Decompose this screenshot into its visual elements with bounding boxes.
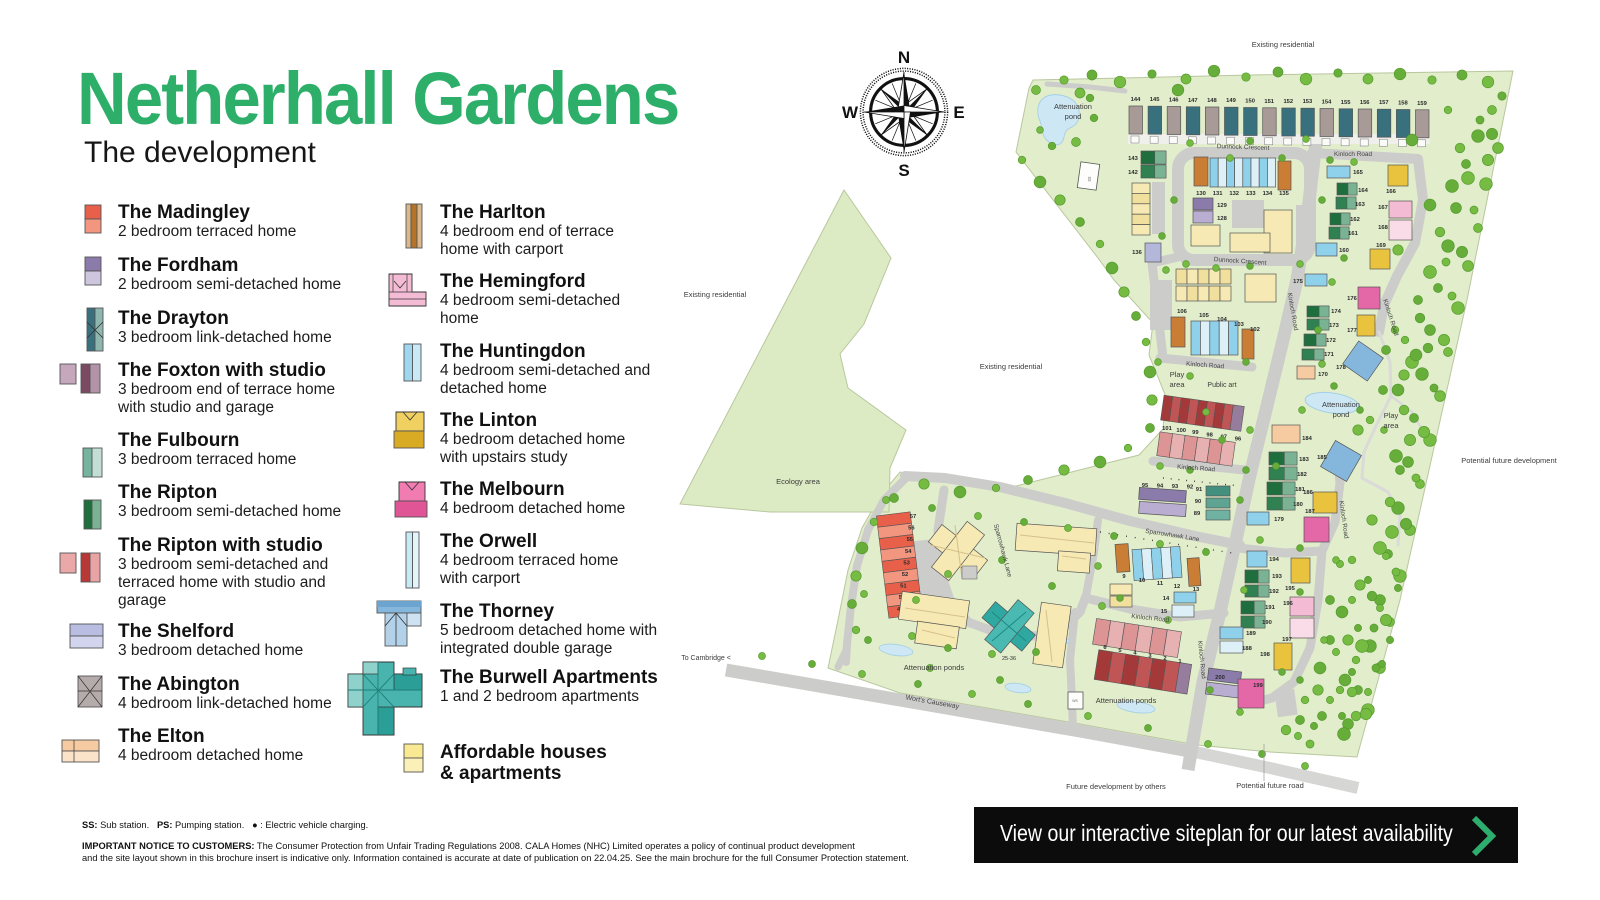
- svg-text:The Melbourn: The Melbourn: [440, 479, 565, 500]
- svg-text:132: 132: [1229, 191, 1239, 197]
- svg-text:4 bedroom terraced home: 4 bedroom terraced home: [440, 552, 618, 569]
- svg-text:147: 147: [1188, 98, 1198, 104]
- svg-text:pond: pond: [1065, 112, 1082, 121]
- svg-text:ws: ws: [1072, 698, 1078, 703]
- svg-text:165: 165: [1353, 170, 1363, 176]
- svg-text:E: E: [953, 103, 964, 122]
- svg-text:The Thorney: The Thorney: [440, 601, 554, 622]
- svg-text:157: 157: [1379, 100, 1389, 106]
- svg-text:133: 133: [1246, 191, 1256, 197]
- svg-text:The Abington: The Abington: [118, 674, 240, 695]
- svg-text:92: 92: [1187, 485, 1193, 491]
- svg-text:168: 168: [1378, 225, 1388, 231]
- svg-text:93: 93: [1172, 484, 1179, 490]
- svg-text:15: 15: [1161, 609, 1168, 615]
- svg-text:179: 179: [1274, 517, 1284, 523]
- svg-text:3 bedroom end of terrace home: 3 bedroom end of terrace home: [118, 381, 335, 398]
- svg-text:3 bedroom link-detached home: 3 bedroom link-detached home: [118, 329, 332, 346]
- svg-text:Kinloch Road: Kinloch Road: [1334, 151, 1372, 158]
- svg-text:The Madingley: The Madingley: [118, 202, 250, 223]
- svg-text:Potential future development: Potential future development: [1461, 456, 1557, 465]
- svg-text:The Fordham: The Fordham: [118, 255, 238, 276]
- svg-text:155: 155: [1341, 100, 1351, 106]
- svg-text:196: 196: [1283, 601, 1293, 607]
- svg-text:Public art: Public art: [1207, 382, 1236, 389]
- svg-text:128: 128: [1217, 216, 1227, 222]
- svg-text:152: 152: [1283, 99, 1293, 105]
- svg-text:51: 51: [900, 584, 907, 590]
- svg-text:2: 2: [1163, 656, 1166, 662]
- svg-text:Attenuation ponds: Attenuation ponds: [1096, 696, 1157, 705]
- svg-text:91: 91: [1196, 487, 1203, 493]
- svg-text:11: 11: [1157, 581, 1164, 587]
- svg-text:146: 146: [1169, 98, 1179, 104]
- svg-text:The Orwell: The Orwell: [440, 531, 537, 552]
- svg-text:Ecology area: Ecology area: [776, 477, 821, 486]
- svg-text:with studio and garage: with studio and garage: [117, 399, 274, 416]
- svg-text:The Elton: The Elton: [118, 726, 205, 747]
- svg-text:175: 175: [1293, 279, 1303, 285]
- svg-text:home with carport: home with carport: [440, 241, 564, 258]
- svg-text:156: 156: [1360, 100, 1370, 106]
- svg-text:57: 57: [910, 514, 916, 520]
- svg-text:103: 103: [1234, 322, 1244, 328]
- svg-text:25-36: 25-36: [1002, 656, 1016, 662]
- svg-text:Existing residential: Existing residential: [1252, 40, 1315, 49]
- svg-text:2 bedroom terraced home: 2 bedroom terraced home: [118, 223, 296, 240]
- svg-text:Future development by others: Future development by others: [1066, 782, 1166, 791]
- svg-text:106: 106: [1177, 309, 1187, 315]
- svg-text:183: 183: [1299, 457, 1309, 463]
- svg-text:with carport: with carport: [439, 570, 521, 587]
- svg-text:The Ripton with studio: The Ripton with studio: [118, 535, 323, 556]
- svg-text:198: 198: [1260, 652, 1270, 658]
- svg-text:99: 99: [1192, 430, 1199, 436]
- svg-text:3 bedroom terraced home: 3 bedroom terraced home: [118, 451, 296, 468]
- svg-text:105: 105: [1199, 313, 1209, 319]
- svg-text:98: 98: [1206, 432, 1213, 438]
- svg-text:171: 171: [1324, 352, 1334, 358]
- svg-text:143: 143: [1128, 156, 1138, 162]
- svg-text:177: 177: [1347, 328, 1357, 334]
- svg-text:197: 197: [1282, 637, 1292, 643]
- svg-text:169: 169: [1376, 243, 1386, 249]
- svg-text:home: home: [440, 310, 479, 327]
- svg-text:N: N: [898, 48, 910, 67]
- svg-text:10: 10: [1139, 578, 1145, 584]
- svg-text:56: 56: [908, 526, 915, 532]
- svg-text:garage: garage: [118, 592, 166, 609]
- svg-text:Attenuation: Attenuation: [1322, 400, 1360, 409]
- svg-text:189: 189: [1246, 631, 1256, 637]
- svg-text:200: 200: [1215, 675, 1225, 681]
- svg-text:The Fulbourn: The Fulbourn: [118, 430, 239, 451]
- svg-text:163: 163: [1355, 202, 1365, 208]
- svg-text:5 bedroom detached home with: 5 bedroom detached home with: [440, 622, 657, 639]
- svg-text:192: 192: [1269, 589, 1279, 595]
- svg-text:194: 194: [1269, 557, 1279, 563]
- svg-text:Existing residential: Existing residential: [980, 362, 1043, 371]
- svg-text:area: area: [1383, 421, 1399, 430]
- svg-text:129: 129: [1217, 203, 1227, 209]
- svg-text:130: 130: [1196, 191, 1206, 197]
- svg-text:& apartments: & apartments: [440, 763, 561, 784]
- svg-text:188: 188: [1242, 646, 1252, 652]
- svg-text:161: 161: [1348, 231, 1358, 237]
- svg-text:135: 135: [1279, 191, 1289, 197]
- svg-text:153: 153: [1303, 99, 1313, 105]
- svg-text:Existing residential: Existing residential: [684, 290, 747, 299]
- svg-text:170: 170: [1318, 372, 1328, 378]
- svg-text:4 bedroom end of terrace: 4 bedroom end of terrace: [440, 223, 614, 240]
- svg-text:145: 145: [1150, 97, 1160, 103]
- svg-text:96: 96: [1235, 437, 1242, 443]
- svg-text:with upstairs study: with upstairs study: [439, 449, 568, 466]
- svg-text:Play: Play: [1170, 370, 1185, 379]
- svg-text:162: 162: [1350, 217, 1360, 223]
- svg-text:4 bedroom semi-detached: 4 bedroom semi-detached: [440, 292, 620, 309]
- svg-text:1 and 2 bedroom apartments: 1 and 2 bedroom apartments: [440, 688, 639, 705]
- svg-text:186: 186: [1303, 490, 1313, 496]
- svg-text:160: 160: [1339, 248, 1349, 254]
- svg-text:166: 166: [1386, 189, 1396, 195]
- svg-text:integrated double garage: integrated double garage: [440, 640, 612, 657]
- svg-text:pond: pond: [1333, 410, 1350, 419]
- svg-text:100: 100: [1176, 428, 1186, 434]
- svg-text:193: 193: [1272, 574, 1282, 580]
- svg-text:The Huntingdon: The Huntingdon: [440, 341, 586, 362]
- svg-text:180: 180: [1293, 502, 1303, 508]
- svg-text:159: 159: [1417, 101, 1427, 107]
- svg-text:The Drayton: The Drayton: [118, 308, 229, 329]
- svg-text:173: 173: [1329, 323, 1339, 329]
- svg-text:148: 148: [1207, 98, 1217, 104]
- svg-text:178: 178: [1336, 365, 1346, 371]
- svg-text:167: 167: [1378, 205, 1388, 211]
- svg-text:191: 191: [1265, 605, 1275, 611]
- svg-text:158: 158: [1398, 101, 1408, 107]
- svg-text:136: 136: [1132, 250, 1142, 256]
- svg-text:Play: Play: [1384, 411, 1399, 420]
- svg-text:S: S: [898, 161, 909, 180]
- svg-text:142: 142: [1128, 170, 1138, 176]
- svg-text:55: 55: [907, 537, 914, 543]
- svg-text:187: 187: [1305, 509, 1315, 515]
- svg-text:101: 101: [1162, 426, 1172, 432]
- svg-text:4 bedroom detached home: 4 bedroom detached home: [440, 431, 625, 448]
- svg-text:4 bedroom link-detached home: 4 bedroom link-detached home: [118, 695, 332, 712]
- svg-text:190: 190: [1262, 620, 1272, 626]
- svg-text:164: 164: [1358, 188, 1368, 194]
- svg-text:To Cambridge <: To Cambridge <: [681, 655, 731, 662]
- svg-text:Attenuation: Attenuation: [1054, 102, 1092, 111]
- svg-text:199: 199: [1253, 683, 1263, 689]
- svg-text:134: 134: [1263, 191, 1273, 197]
- svg-text:94: 94: [1157, 484, 1164, 490]
- svg-text:The Burwell Apartments: The Burwell Apartments: [440, 667, 658, 688]
- svg-text:149: 149: [1226, 98, 1236, 104]
- svg-text:4 bedroom semi-detached and: 4 bedroom semi-detached and: [440, 362, 650, 379]
- svg-text:52: 52: [902, 572, 908, 578]
- svg-text:3 bedroom semi-detached home: 3 bedroom semi-detached home: [118, 503, 341, 520]
- svg-text:174: 174: [1331, 309, 1341, 315]
- svg-text:The Shelford: The Shelford: [118, 621, 234, 642]
- svg-text:14: 14: [1163, 596, 1170, 602]
- svg-text:4 bedroom detached home: 4 bedroom detached home: [440, 500, 625, 517]
- svg-text:The Harlton: The Harlton: [440, 202, 546, 223]
- svg-text:195: 195: [1285, 586, 1295, 592]
- svg-text:90: 90: [1195, 499, 1201, 505]
- svg-text:detached home: detached home: [440, 380, 547, 397]
- svg-text:102: 102: [1250, 327, 1260, 333]
- svg-text:The Foxton with studio: The Foxton with studio: [118, 360, 326, 381]
- svg-text:54: 54: [905, 549, 912, 555]
- svg-text:terraced home with studio and: terraced home with studio and: [118, 574, 326, 591]
- svg-text:4 bedroom detached home: 4 bedroom detached home: [118, 747, 303, 764]
- svg-text:150: 150: [1245, 99, 1255, 105]
- svg-text:3 bedroom semi-detached and: 3 bedroom semi-detached and: [118, 556, 328, 573]
- svg-text:131: 131: [1213, 191, 1223, 197]
- svg-text:Attenuation ponds: Attenuation ponds: [904, 663, 965, 672]
- svg-text:89: 89: [1194, 511, 1201, 517]
- svg-text:104: 104: [1217, 317, 1227, 323]
- svg-text:151: 151: [1264, 99, 1274, 105]
- svg-text:W: W: [842, 103, 859, 122]
- svg-text:3 bedroom detached home: 3 bedroom detached home: [118, 642, 303, 659]
- svg-text:185: 185: [1317, 455, 1327, 461]
- svg-text:95: 95: [1142, 483, 1149, 489]
- svg-text:182: 182: [1297, 472, 1307, 478]
- svg-text:176: 176: [1347, 296, 1357, 302]
- svg-text:area: area: [1169, 380, 1185, 389]
- svg-text:The Linton: The Linton: [440, 410, 537, 431]
- svg-text:154: 154: [1322, 100, 1332, 106]
- svg-text:Potential future road: Potential future road: [1236, 781, 1304, 790]
- svg-text:2 bedroom semi-detached home: 2 bedroom semi-detached home: [118, 276, 341, 293]
- svg-text:144: 144: [1131, 97, 1141, 103]
- svg-text:184: 184: [1302, 436, 1312, 442]
- svg-text:The Hemingford: The Hemingford: [440, 271, 586, 292]
- svg-text:ss: ss: [1086, 177, 1092, 183]
- svg-text:12: 12: [1174, 584, 1180, 590]
- svg-text:The Ripton: The Ripton: [118, 482, 217, 503]
- svg-text:172: 172: [1326, 338, 1336, 344]
- svg-text:53: 53: [903, 560, 910, 566]
- svg-text:Affordable houses: Affordable houses: [440, 742, 607, 763]
